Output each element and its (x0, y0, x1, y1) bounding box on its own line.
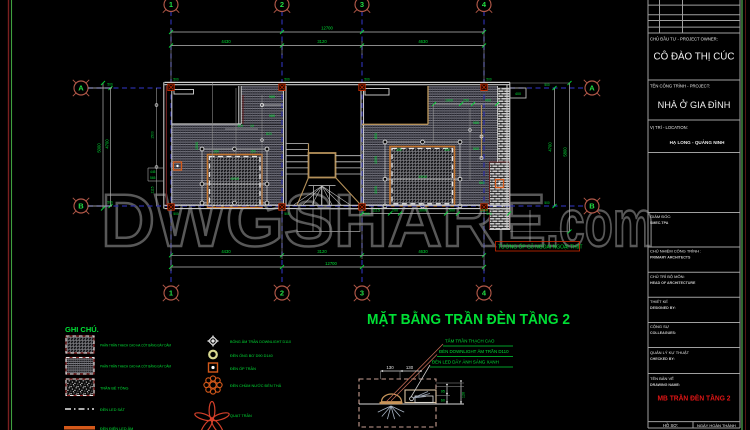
svg-text:ĐÈN ỐP TRẦN: ĐÈN ỐP TRẦN (230, 366, 256, 371)
svg-text:3: 3 (360, 0, 364, 9)
svg-text:1900: 1900 (418, 174, 428, 179)
svg-text:400: 400 (485, 99, 491, 103)
svg-text:4700: 4700 (548, 142, 553, 152)
svg-text:150: 150 (250, 150, 256, 154)
svg-text:B: B (78, 202, 84, 211)
svg-text:1115: 1115 (372, 209, 380, 213)
svg-text:110: 110 (237, 124, 243, 128)
svg-text:1500: 1500 (374, 156, 378, 164)
svg-text:CÔ ĐÀO THỊ CÚC: CÔ ĐÀO THỊ CÚC (654, 52, 735, 63)
svg-text:GIÁM ĐỐC:: GIÁM ĐỐC: (650, 214, 671, 219)
svg-text:985: 985 (269, 95, 275, 99)
svg-text:130: 130 (406, 365, 414, 370)
svg-text:3: 3 (360, 289, 364, 298)
svg-text:2: 2 (280, 0, 284, 9)
svg-text:3000: 3000 (419, 209, 427, 213)
svg-text:B: B (589, 202, 595, 211)
svg-text:60: 60 (441, 399, 445, 403)
svg-text:565: 565 (479, 181, 485, 185)
svg-text:PHẦN TRẦN THẠCH CAO HẠ CỐT BẰN: PHẦN TRẦN THẠCH CAO HẠ CỐT BẰNG ĐÁY DẦM (100, 343, 171, 348)
svg-text:GHI CHÚ.: GHI CHÚ. (65, 325, 99, 334)
svg-text:820: 820 (266, 132, 272, 136)
svg-text:PRIMARY ARCHITECTS: PRIMARY ARCHITECTS (650, 256, 691, 260)
svg-text:445: 445 (150, 170, 156, 174)
svg-text:500: 500 (107, 201, 113, 205)
svg-text:95: 95 (441, 390, 445, 394)
svg-text:565: 565 (150, 176, 156, 180)
svg-text:850: 850 (374, 133, 378, 139)
svg-text:3120: 3120 (317, 249, 327, 254)
svg-text:500: 500 (364, 78, 370, 82)
svg-text:150: 150 (396, 148, 402, 152)
svg-text:SMEC.TPA: SMEC.TPA (650, 221, 669, 225)
svg-text:130: 130 (386, 365, 394, 370)
svg-text:4430: 4430 (221, 39, 231, 44)
svg-text:12700: 12700 (321, 26, 333, 31)
svg-text:HỒ SƠ:: HỒ SƠ: (663, 423, 678, 428)
svg-text:ĐÈN ỐNG BƠ D90 D140: ĐÈN ỐNG BƠ D90 D140 (230, 353, 273, 358)
svg-text:PHẦN TRẦN THẠCH CAO HẠ CỐT BẰN: PHẦN TRẦN THẠCH CAO HẠ CỐT BẰNG ĐÁY DẦM (100, 364, 171, 369)
svg-text:MẶT BẰNG TRẦN ĐÈN TẦNG 2: MẶT BẰNG TRẦN ĐÈN TẦNG 2 (367, 310, 570, 328)
svg-text:500: 500 (107, 83, 113, 87)
svg-text:DESIGNED BY:: DESIGNED BY: (650, 306, 676, 310)
svg-text:3120: 3120 (317, 39, 327, 44)
svg-text:ĐÈN LED SÁT: ĐÈN LED SÁT (100, 407, 126, 412)
svg-text:TẤM TRẦN THẠCH CAO: TẤM TRẦN THẠCH CAO (445, 339, 495, 344)
svg-text:500: 500 (544, 201, 550, 205)
svg-text:120: 120 (462, 392, 466, 398)
svg-text:4430: 4430 (221, 249, 231, 254)
svg-text:MB TRẦN ĐÈN TẦNG 2: MB TRẦN ĐÈN TẦNG 2 (658, 393, 731, 403)
svg-text:ĐÈN LED DÂY ÁNH SÁNG XANH: ĐÈN LED DÂY ÁNH SÁNG XANH (432, 360, 499, 365)
svg-text:CHỦ TRÌ BỘ MÔN:: CHỦ TRÌ BỘ MÔN: (650, 274, 685, 279)
svg-text:150: 150 (213, 150, 219, 154)
svg-text:500: 500 (486, 78, 492, 82)
svg-text:TRẦN BÊ TÔNG: TRẦN BÊ TÔNG (100, 386, 128, 391)
svg-text:HẠ LONG - QUẢNG NINH: HẠ LONG - QUẢNG NINH (670, 139, 726, 145)
svg-text:1900: 1900 (230, 176, 240, 181)
svg-text:985: 985 (269, 114, 275, 118)
svg-text:5800: 5800 (563, 147, 568, 157)
svg-text:QUẠT TRẦN: QUẠT TRẦN (230, 414, 252, 418)
svg-text:4630: 4630 (418, 249, 428, 254)
svg-text:500: 500 (173, 78, 179, 82)
svg-text:150: 150 (444, 148, 450, 152)
svg-text:TƯỜNG ỐP Gỗ NGOAI NGOẠI THấT: TƯỜNG ỐP Gỗ NGOAI NGOẠI THấT (498, 244, 583, 251)
svg-text:400: 400 (515, 92, 521, 96)
svg-text:4630: 4630 (418, 39, 428, 44)
svg-text:DRAWING NAME:: DRAWING NAME: (650, 383, 680, 387)
svg-text:12700: 12700 (325, 261, 337, 266)
svg-text:NGÀY HOÀN THÀNH: NGÀY HOÀN THÀNH (697, 423, 736, 428)
svg-text:500: 500 (449, 209, 455, 213)
svg-text:1115: 1115 (151, 186, 155, 193)
svg-text:QUẢN LÝ KỰ THUẬT: QUẢN LÝ KỰ THUẬT (650, 350, 690, 355)
svg-text:CHỦ ĐẦU TƯ - PROJECT OWNER:: CHỦ ĐẦU TƯ - PROJECT OWNER: (650, 37, 718, 42)
svg-text:5000: 5000 (97, 143, 102, 153)
svg-text:ĐÈN CHÙM NƯỚC ĐÈN THẢ: ĐÈN CHÙM NƯỚC ĐÈN THẢ (230, 383, 282, 388)
svg-text:ĐÈN ĐIỆN LED ÂM: ĐÈN ĐIỆN LED ÂM (100, 426, 133, 430)
svg-text:TÊN CÔNG TRÌNH - PROJECT:: TÊN CÔNG TRÌNH - PROJECT: (650, 84, 710, 89)
svg-text:TÊN BẢN VẼ: TÊN BẢN VẼ (650, 376, 674, 381)
svg-text:565: 565 (473, 147, 479, 151)
svg-text:500: 500 (486, 212, 492, 216)
svg-text:COLLEAGUES:: COLLEAGUES: (650, 331, 676, 335)
svg-text:4700: 4700 (105, 139, 110, 149)
svg-text:500: 500 (364, 212, 370, 216)
svg-text:500: 500 (284, 78, 290, 82)
svg-text:3000: 3000 (374, 186, 378, 194)
svg-text:1500: 1500 (195, 142, 199, 150)
svg-text:1500: 1500 (151, 131, 155, 139)
svg-text:250: 250 (463, 99, 469, 103)
svg-text:1: 1 (169, 0, 173, 9)
svg-text:985: 985 (473, 121, 479, 125)
svg-text:2: 2 (280, 289, 284, 298)
svg-text:HEAD OF ARCHITECTURE: HEAD OF ARCHITECTURE (650, 281, 696, 285)
svg-text:A: A (589, 84, 595, 93)
svg-text:10: 10 (250, 124, 254, 128)
svg-text:500: 500 (284, 212, 290, 216)
svg-text:NHÀ Ở GIA ĐÌNH: NHÀ Ở GIA ĐÌNH (658, 99, 731, 110)
svg-text:500: 500 (544, 83, 550, 87)
svg-text:1900: 1900 (445, 99, 453, 103)
svg-text:CHỦ NHIỆM CÔNG TRÌNH :: CHỦ NHIỆM CÔNG TRÌNH : (650, 249, 701, 254)
svg-text:200: 200 (392, 209, 398, 213)
svg-text:500: 500 (173, 212, 179, 216)
svg-text:CỘNG SỰ: CỘNG SỰ (650, 324, 670, 329)
svg-text:BÓNG ÂM TRẦN DOWNLIGHT D110: BÓNG ÂM TRẦN DOWNLIGHT D110 (230, 339, 291, 344)
svg-text:A: A (78, 84, 84, 93)
svg-text:THIẾT KẾ: THIẾT KẾ (650, 299, 668, 304)
svg-text:1: 1 (169, 289, 173, 298)
svg-text:ĐÈN DOWNLIGHT ÂM TRẦN D110: ĐÈN DOWNLIGHT ÂM TRẦN D110 (439, 349, 509, 354)
svg-text:VỊ TRÍ - LOCATION:: VỊ TRÍ - LOCATION: (650, 125, 688, 130)
svg-text:CHECKED BY:: CHECKED BY: (650, 357, 675, 361)
